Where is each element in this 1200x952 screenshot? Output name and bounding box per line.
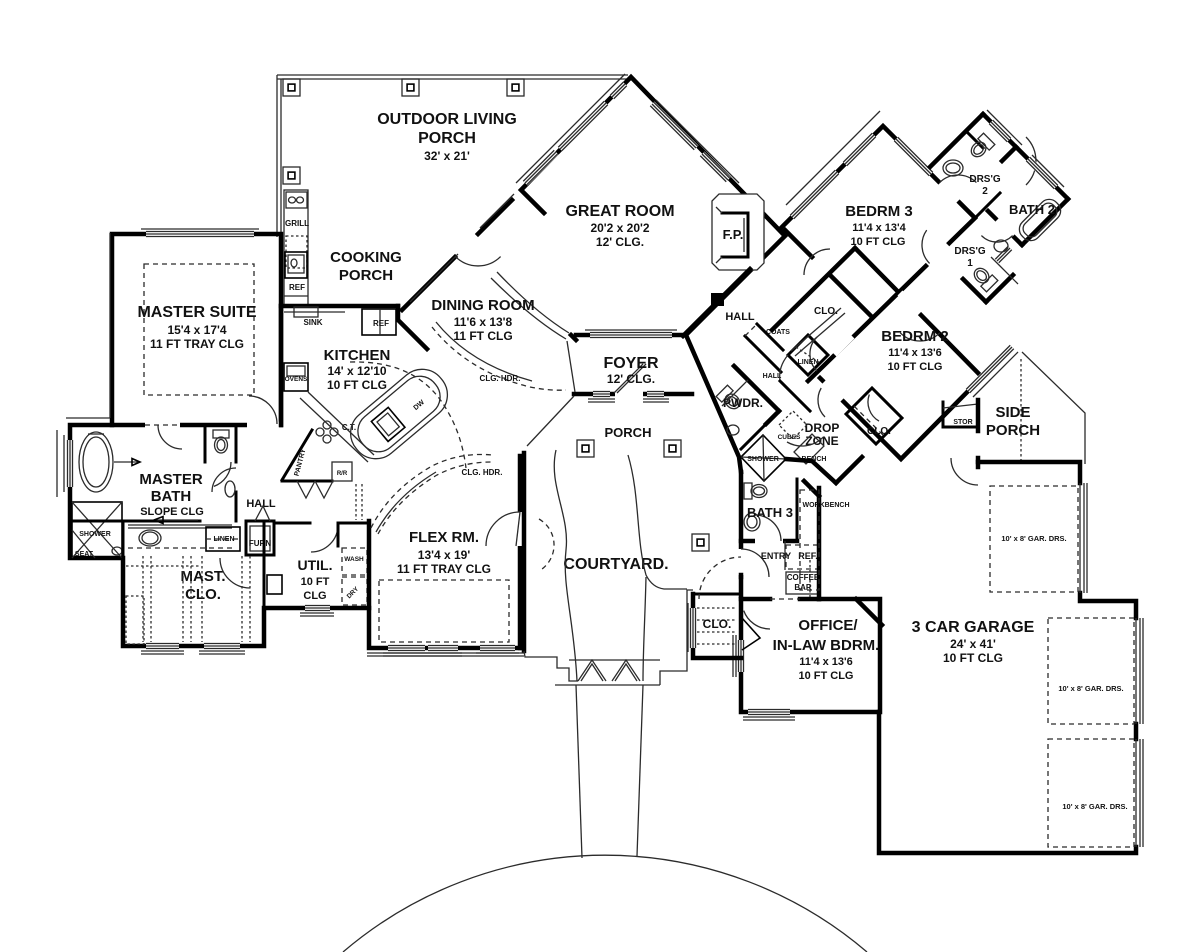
- svg-text:10 FT CLG: 10 FT CLG: [850, 236, 905, 248]
- svg-text:DRS'G: DRS'G: [954, 246, 985, 257]
- svg-text:COURTYARD.: COURTYARD.: [563, 556, 668, 573]
- svg-text:11'4 x 13'4: 11'4 x 13'4: [852, 222, 906, 234]
- svg-text:GRILL: GRILL: [285, 219, 309, 228]
- svg-text:CLO.: CLO.: [814, 306, 838, 317]
- svg-text:BATH 3: BATH 3: [747, 505, 793, 520]
- svg-text:HALL: HALL: [725, 311, 755, 323]
- svg-text:BEDRM 2: BEDRM 2: [881, 328, 949, 345]
- svg-text:DINING ROOM: DINING ROOM: [431, 297, 534, 314]
- svg-text:12' CLG.: 12' CLG.: [607, 372, 655, 386]
- svg-text:20'2 x 20'2: 20'2 x 20'2: [590, 221, 649, 235]
- svg-text:10' x 8' GAR. DRS.: 10' x 8' GAR. DRS.: [1062, 802, 1127, 811]
- svg-text:LINEN: LINEN: [798, 359, 819, 366]
- svg-text:32' x 21': 32' x 21': [424, 149, 470, 163]
- svg-text:OUTDOOR LIVING: OUTDOOR LIVING: [377, 111, 517, 128]
- svg-text:SEAT: SEAT: [75, 551, 94, 558]
- svg-text:CUBES: CUBES: [778, 434, 801, 441]
- svg-text:COFFEE: COFFEE: [787, 573, 820, 582]
- svg-text:MASTER: MASTER: [139, 471, 203, 488]
- svg-text:CLO.: CLO.: [185, 586, 221, 603]
- svg-text:CLG. HDR.: CLG. HDR.: [462, 468, 503, 477]
- svg-text:CLO.: CLO.: [703, 617, 732, 631]
- svg-text:OFFICE/: OFFICE/: [798, 617, 858, 634]
- svg-text:R/R: R/R: [337, 471, 348, 477]
- svg-text:24' x 41': 24' x 41': [950, 637, 996, 651]
- svg-text:MAST.: MAST.: [181, 568, 226, 585]
- svg-text:C.T.: C.T.: [342, 423, 356, 432]
- svg-text:SIDE: SIDE: [995, 404, 1030, 421]
- svg-text:SHOWER: SHOWER: [79, 531, 111, 538]
- svg-text:BATH 2: BATH 2: [1009, 202, 1055, 217]
- svg-text:REF: REF: [289, 283, 305, 292]
- svg-text:11'6 x 13'8: 11'6 x 13'8: [454, 315, 513, 329]
- svg-text:UTIL.: UTIL.: [298, 557, 333, 573]
- svg-text:3 CAR GARAGE: 3 CAR GARAGE: [912, 619, 1035, 636]
- svg-text:F.P.: F.P.: [723, 227, 744, 242]
- svg-text:SHOWER: SHOWER: [747, 456, 779, 463]
- svg-text:11 FT TRAY CLG: 11 FT TRAY CLG: [397, 562, 491, 576]
- svg-text:BEDRM 3: BEDRM 3: [845, 203, 913, 220]
- svg-text:DRS'G: DRS'G: [969, 174, 1000, 185]
- svg-text:BATH: BATH: [151, 488, 192, 505]
- svg-text:FLEX RM.: FLEX RM.: [409, 529, 479, 546]
- svg-text:MASTER SUITE: MASTER SUITE: [137, 304, 256, 321]
- svg-text:LINEN: LINEN: [214, 536, 235, 543]
- svg-text:WASH: WASH: [344, 556, 364, 563]
- svg-text:SLOPE CLG: SLOPE CLG: [140, 506, 204, 518]
- svg-text:15'4 x 17'4: 15'4 x 17'4: [167, 323, 226, 337]
- svg-text:10 FT CLG: 10 FT CLG: [327, 378, 387, 392]
- svg-text:KITCHEN: KITCHEN: [324, 347, 391, 364]
- svg-text:10 FT CLG: 10 FT CLG: [943, 651, 1003, 665]
- svg-text:DROP: DROP: [805, 421, 840, 435]
- svg-text:GREAT ROOM: GREAT ROOM: [565, 203, 674, 220]
- svg-text:CLG. HDR.: CLG. HDR.: [480, 374, 521, 383]
- svg-text:REF: REF: [373, 319, 389, 328]
- svg-text:STOR: STOR: [953, 419, 972, 426]
- svg-text:FURN: FURN: [249, 539, 271, 548]
- svg-text:CLO.: CLO.: [867, 426, 891, 437]
- svg-text:PORCH: PORCH: [605, 425, 652, 440]
- svg-text:10 FT CLG: 10 FT CLG: [798, 670, 853, 682]
- svg-text:1: 1: [967, 258, 973, 269]
- svg-text:FOYER: FOYER: [603, 355, 659, 372]
- svg-text:10' x 8' GAR. DRS.: 10' x 8' GAR. DRS.: [1058, 684, 1123, 693]
- svg-text:11 FT CLG: 11 FT CLG: [453, 329, 512, 343]
- svg-text:PORCH: PORCH: [339, 267, 393, 284]
- svg-text:SINK: SINK: [303, 318, 322, 327]
- svg-text:PORCH: PORCH: [418, 130, 476, 147]
- svg-text:PORCH: PORCH: [986, 422, 1040, 439]
- svg-text:11'4 x 13'6: 11'4 x 13'6: [888, 347, 942, 359]
- svg-text:10' x 8' GAR. DRS.: 10' x 8' GAR. DRS.: [1001, 534, 1066, 543]
- svg-text:REF.: REF.: [798, 551, 818, 561]
- svg-text:11'4 x 13'6: 11'4 x 13'6: [799, 656, 853, 668]
- svg-text:11 FT TRAY CLG: 11 FT TRAY CLG: [150, 337, 244, 351]
- svg-text:2: 2: [982, 186, 988, 197]
- svg-text:IN-LAW BDRM.: IN-LAW BDRM.: [773, 637, 880, 654]
- svg-text:OVENS: OVENS: [285, 376, 308, 383]
- svg-text:10 FT: 10 FT: [301, 576, 330, 588]
- svg-text:13'4 x 19': 13'4 x 19': [418, 548, 471, 562]
- svg-text:WORKBENCH: WORKBENCH: [802, 502, 849, 509]
- svg-text:10 FT CLG: 10 FT CLG: [887, 361, 942, 373]
- svg-text:12' CLG.: 12' CLG.: [596, 235, 644, 249]
- svg-text:CLG: CLG: [303, 590, 326, 602]
- svg-text:14' x 12'10: 14' x 12'10: [327, 364, 386, 378]
- svg-text:COOKING: COOKING: [330, 249, 402, 266]
